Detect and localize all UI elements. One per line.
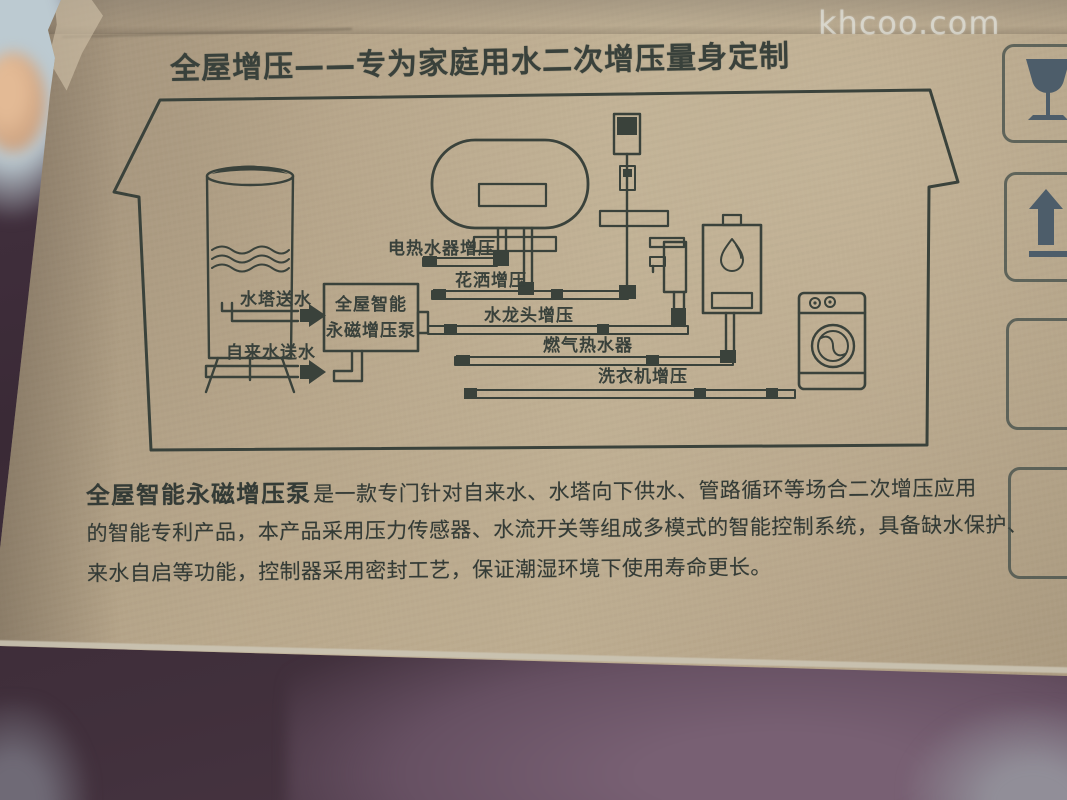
gas-heater-pipe	[455, 355, 733, 366]
label-faucet: 水龙头增压	[484, 305, 574, 326]
description-lead: 全屋智能永磁增压泵	[86, 479, 311, 509]
fragile-icon	[1019, 57, 1067, 127]
pump-label-line2: 永磁增压泵	[325, 320, 416, 341]
washing-machine-icon	[799, 293, 865, 389]
house-outline	[114, 90, 958, 450]
label-electric-heater: 电热水器增压	[388, 238, 496, 259]
symbol-box-partial-3	[1006, 318, 1067, 430]
label-washer: 洗衣机增压	[598, 366, 688, 387]
symbol-box-fragile	[1002, 44, 1067, 143]
label-water-tower-feed: 水塔送水	[240, 289, 312, 310]
tap-water-feed-pipe	[206, 360, 326, 384]
faucet-icon	[650, 238, 686, 326]
watermark: khcoo.com	[818, 4, 1001, 42]
shower-icon	[600, 114, 668, 299]
label-tap-water-feed: 自来水送水	[226, 342, 316, 363]
gas-water-heater-icon	[703, 215, 761, 363]
label-shower: 花洒增压	[455, 270, 527, 291]
background-corner-highlight	[907, 705, 1067, 800]
label-gas-heater: 燃气热水器	[543, 335, 633, 356]
background-corner-gray	[0, 700, 90, 800]
symbol-box-partial-4	[1008, 467, 1067, 579]
pump-label-line1: 全屋智能	[334, 294, 407, 315]
description-line-1-rest: 是一款专门针对自来水、水塔向下供水、管路循环等场合二次增压应用	[313, 476, 977, 506]
photo-of-box: 全屋增压——专为家庭用水二次增压量身定制	[0, 0, 1067, 800]
this-way-up-icon	[1029, 187, 1067, 267]
washer-pipe	[464, 388, 795, 399]
symbol-box-this-way-up	[1004, 172, 1067, 282]
